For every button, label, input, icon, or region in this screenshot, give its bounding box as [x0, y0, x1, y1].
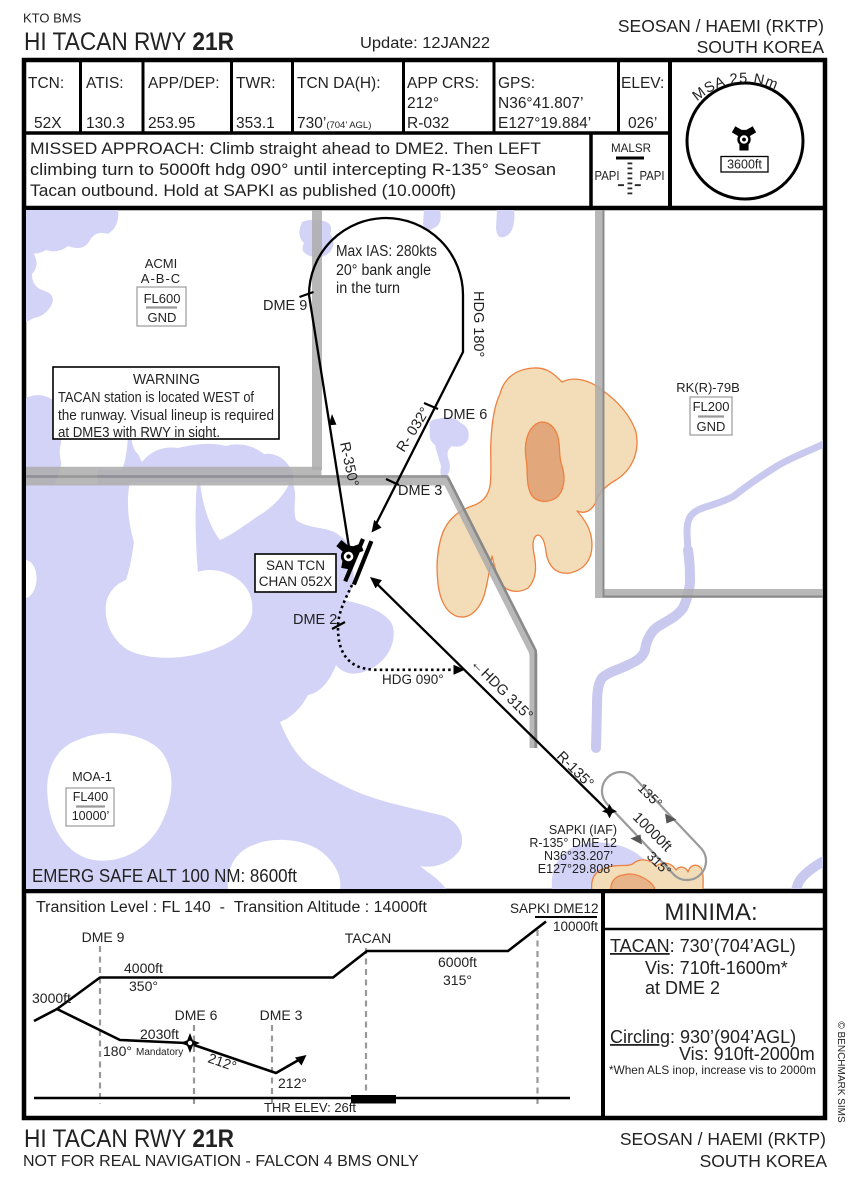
svg-text:SAN TCN: SAN TCN	[266, 558, 325, 573]
svg-text:TWR:: TWR:	[236, 75, 276, 92]
svg-text:212°: 212°	[407, 95, 439, 112]
svg-text:N36°41.807’: N36°41.807’	[498, 95, 584, 112]
svg-text:R-135°: R-135°	[553, 749, 596, 792]
svg-text:FL600: FL600	[144, 291, 181, 306]
svg-text:© BENCHMARK SIMS: © BENCHMARK SIMS	[835, 1021, 846, 1123]
svg-text:HDG 090°: HDG 090°	[382, 672, 444, 687]
svg-text:DME 9: DME 9	[82, 929, 125, 945]
svg-text:353.1: 353.1	[236, 115, 275, 132]
svg-text:FL400: FL400	[73, 790, 108, 804]
svg-text:10000ft: 10000ft	[553, 919, 598, 934]
svg-text:Vis: 910ft-2000m: Vis: 910ft-2000m	[679, 1044, 815, 1064]
svg-text:52X: 52X	[34, 115, 62, 132]
svg-text:R-135° DME 12: R-135° DME 12	[529, 836, 617, 850]
svg-text:TCN:: TCN:	[28, 75, 64, 92]
svg-text:TACAN: TACAN	[345, 930, 391, 946]
svg-text:the runway. Visual lineup is r: the runway. Visual lineup is required	[58, 407, 274, 424]
svg-text:THR ELEV: 26ft: THR ELEV: 26ft	[264, 1100, 356, 1115]
svg-text:←HDG 315°: ←HDG 315°	[467, 656, 535, 724]
svg-text:MINIMA:: MINIMA:	[664, 899, 757, 926]
svg-text:HDG 180°: HDG 180°	[470, 291, 486, 357]
svg-text:350°: 350°	[129, 978, 158, 994]
svg-text:Transition Level : FL 140 -: Transition Level : FL 140 - Transition A…	[36, 899, 428, 916]
svg-text:FL200: FL200	[693, 399, 730, 414]
svg-text:DME 6: DME 6	[443, 407, 487, 423]
svg-text:SAPKI (IAF): SAPKI (IAF)	[549, 823, 617, 837]
svg-text:TACAN: 730’(704’AGL): TACAN: 730’(704’AGL)	[610, 936, 796, 956]
svg-text:3600ft: 3600ft	[727, 158, 762, 172]
svg-text:E127°29.808’: E127°29.808’	[538, 862, 613, 876]
svg-text:Tacan outbound. Hold at SAPKI: Tacan outbound. Hold at SAPKI as publish…	[30, 182, 456, 200]
svg-text:3000ft: 3000ft	[32, 990, 71, 1006]
svg-text:6000ft: 6000ft	[438, 954, 477, 970]
svg-text:026’: 026’	[628, 115, 657, 132]
svg-text:N36°33.207’: N36°33.207’	[544, 849, 613, 863]
svg-text:SOUTH KOREA: SOUTH KOREA	[700, 1151, 828, 1171]
svg-text:212°: 212°	[278, 1075, 307, 1091]
svg-text:TACAN station is located WEST: TACAN station is located WEST of	[58, 389, 255, 406]
svg-text:in the turn: in the turn	[336, 280, 400, 297]
svg-text:130.3: 130.3	[86, 115, 125, 132]
svg-text:APP/DEP:: APP/DEP:	[148, 75, 220, 92]
svg-text:A-B-C: A-B-C	[141, 271, 181, 286]
svg-text:PAPI: PAPI	[595, 169, 620, 183]
svg-text:climbing turn to 5000ft hdg 09: climbing turn to 5000ft hdg 090° until i…	[30, 161, 556, 179]
svg-text:GPS:: GPS:	[498, 75, 535, 92]
svg-text:20° bank angle: 20° bank angle	[336, 262, 431, 279]
svg-text:WARNING: WARNING	[133, 371, 200, 388]
svg-text:DME 3: DME 3	[260, 1007, 303, 1023]
svg-text:Update: 12JAN22: Update: 12JAN22	[360, 35, 490, 52]
svg-text:ELEV:: ELEV:	[621, 75, 664, 92]
svg-text:RK(R)-79B: RK(R)-79B	[676, 380, 740, 395]
svg-text:GND: GND	[148, 310, 177, 325]
svg-text:DME 3: DME 3	[398, 483, 442, 499]
svg-text:at DME3 with RWY in sight.: at DME3 with RWY in sight.	[58, 424, 220, 441]
svg-text:CHAN 052X: CHAN 052X	[259, 574, 333, 589]
svg-text:212°: 212°	[206, 1050, 239, 1075]
svg-text:at DME 2: at DME 2	[645, 978, 720, 998]
svg-text:730’(704’ AGL): 730’(704’ AGL)	[297, 115, 371, 132]
svg-text:SAPKI DME12: SAPKI DME12	[510, 901, 599, 916]
svg-text:R-032: R-032	[407, 115, 449, 132]
svg-text:SOUTH KOREA: SOUTH KOREA	[697, 37, 825, 57]
svg-text:Vis: 710ft-1600m*: Vis: 710ft-1600m*	[645, 958, 788, 978]
svg-text:315°: 315°	[443, 972, 472, 988]
svg-text:HI TACAN RWY 21R: HI TACAN RWY 21R	[24, 28, 234, 56]
svg-text:253.95: 253.95	[148, 115, 195, 132]
svg-text:E127°19.884’: E127°19.884’	[498, 115, 591, 132]
svg-text:10000’: 10000’	[72, 809, 110, 823]
svg-text:DME 2: DME 2	[293, 612, 337, 628]
svg-text:KTO BMS: KTO BMS	[23, 11, 82, 26]
svg-text:GND: GND	[697, 419, 726, 434]
svg-text:Mandatory: Mandatory	[136, 1047, 183, 1058]
svg-text:ACMI: ACMI	[145, 256, 178, 271]
svg-text:NOT FOR REAL NAVIGATION - FALC: NOT FOR REAL NAVIGATION - FALCON 4 BMS O…	[23, 1153, 419, 1170]
svg-text:ATIS:: ATIS:	[86, 75, 124, 92]
svg-text:MISSED APPROACH: Climb straigh: MISSED APPROACH: Climb straight ahead to…	[30, 140, 541, 158]
svg-text:Max IAS: 280kts: Max IAS: 280kts	[336, 243, 437, 260]
svg-text:APP CRS:: APP CRS:	[407, 75, 479, 92]
svg-text:HI TACAN RWY 21R: HI TACAN RWY 21R	[24, 1125, 234, 1153]
svg-text:4000ft: 4000ft	[124, 960, 163, 976]
svg-text:DME 6: DME 6	[175, 1007, 218, 1023]
svg-text:SEOSAN / HAEMI (RKTP): SEOSAN / HAEMI (RKTP)	[618, 16, 824, 36]
svg-text:SEOSAN / HAEMI (RKTP): SEOSAN / HAEMI (RKTP)	[620, 1129, 826, 1149]
svg-text:PAPI: PAPI	[640, 169, 665, 183]
svg-text:180°: 180°	[103, 1043, 132, 1059]
svg-text:2030ft: 2030ft	[140, 1026, 179, 1042]
svg-text:*When ALS inop, increase vis t: *When ALS inop, increase vis to 2000m	[609, 1063, 816, 1077]
svg-text:TCN DA(H):: TCN DA(H):	[297, 75, 381, 92]
svg-text:MALSR: MALSR	[611, 141, 651, 155]
svg-text:MOA-1: MOA-1	[72, 770, 112, 784]
svg-text:MSA 25 Nm: MSA 25 Nm	[690, 71, 781, 105]
svg-text:EMERG SAFE ALT 100 NM: 8600ft: EMERG SAFE ALT 100 NM: 8600ft	[32, 866, 297, 886]
svg-text:DME 9: DME 9	[263, 298, 307, 314]
